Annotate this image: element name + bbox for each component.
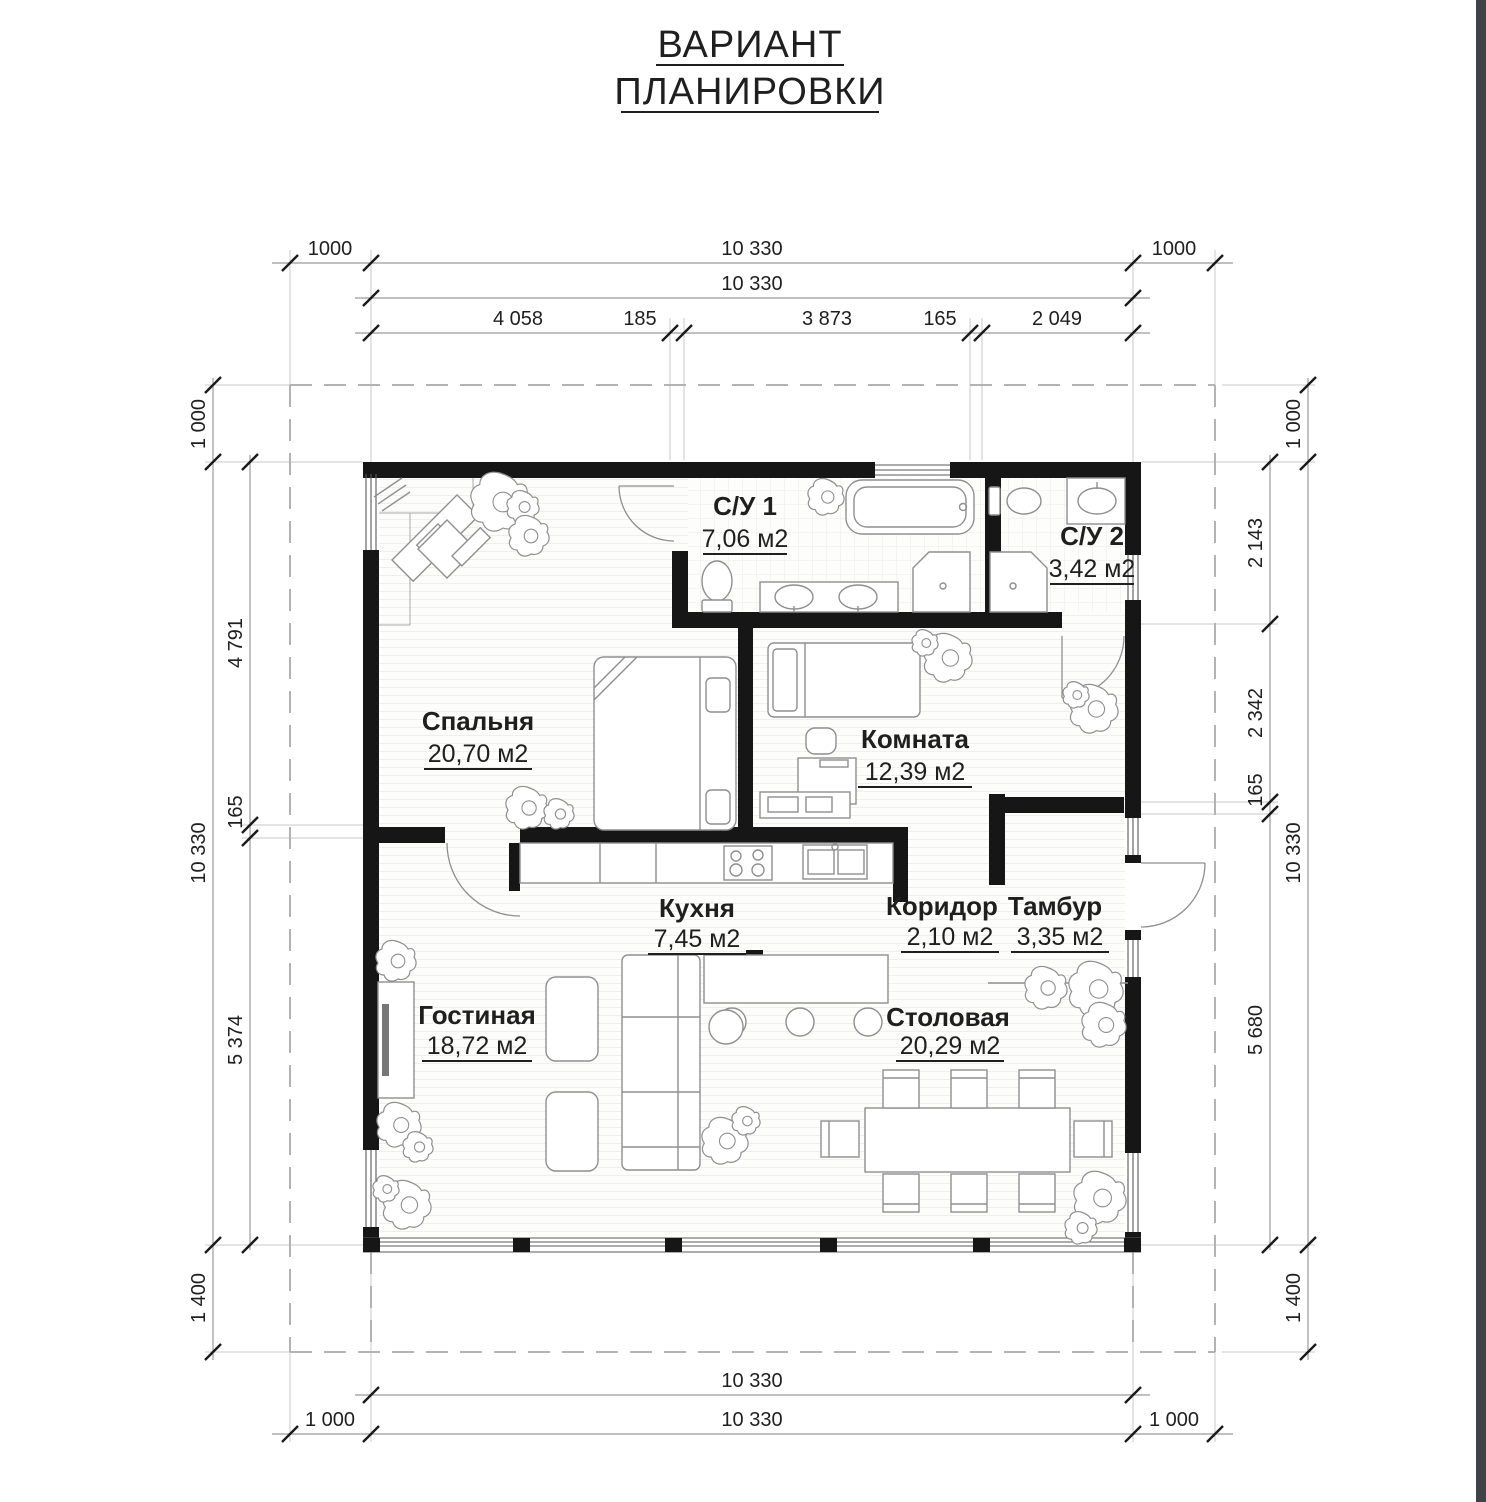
dim-bottom-right-1000: 1 000	[1149, 1409, 1199, 1431]
room-name-tambur: Тамбур	[1008, 891, 1102, 921]
dim-bottom-10330: 10 330	[721, 1370, 782, 1392]
dim-top-right-1000: 1000	[1152, 238, 1197, 260]
window-band-bottom	[363, 1238, 1141, 1252]
kitchen-sink	[803, 844, 867, 879]
room-name-gostinaya: Гостиная	[418, 1000, 536, 1030]
dim-bottom-left-1000: 1 000	[305, 1409, 355, 1431]
bedroom-door-leaf	[509, 843, 520, 891]
bedroom-bed	[594, 657, 736, 830]
dim-top-3873: 3 873	[802, 308, 852, 330]
toilet	[989, 487, 1041, 515]
dim-bottom-10330-b: 10 330	[721, 1409, 782, 1431]
room-area-komnata: 12,39 м2	[865, 758, 966, 786]
pillow	[706, 678, 730, 712]
window-right-tambur-lower	[1128, 940, 1138, 977]
dimensions-right: 2 143 2 342 165 5 680 1 000 10 330 1 400	[1245, 377, 1316, 1360]
room-label-stolovaya: Столовая 20,29 м2	[886, 1002, 1010, 1061]
desk-chair	[806, 728, 836, 754]
room-area-su1: 7,06 м2	[702, 525, 789, 553]
room-area-kuhnya: 7,45 м2	[654, 925, 741, 953]
kitchen-island	[704, 955, 888, 1003]
dim-right-5680: 5 680	[1245, 1005, 1267, 1055]
page-edge-strip	[1476, 0, 1486, 1502]
dimensions-bottom: 10 330 1 000 10 330 1 000	[272, 1370, 1233, 1442]
room-name-su1: С/У 1	[713, 491, 777, 521]
wall-bedroom-komnata	[738, 628, 753, 843]
room-area-su2: 3,42 м2	[1049, 555, 1136, 583]
room-name-spalnya: Спальня	[422, 706, 534, 736]
wall-tambur-left	[989, 794, 1005, 885]
pillow	[706, 790, 730, 824]
dimensions-top: 1000 10 330 1000 10 330 4 058 185 3 873 …	[272, 238, 1233, 341]
window-top-bath	[875, 465, 950, 475]
room-area-spalnya: 20,70 м2	[428, 740, 529, 768]
window-right-dining	[1128, 1153, 1138, 1232]
armchair	[546, 977, 598, 1061]
dim-left-165: 165	[225, 795, 247, 828]
room-name-kuhnya: Кухня	[659, 893, 735, 923]
dim-top-165: 165	[923, 308, 956, 330]
floor-plan-page: ВАРИАНТ ПЛАНИРОВКИ	[0, 0, 1486, 1502]
dim-top-10330: 10 330	[721, 238, 782, 260]
wall-tambur-top	[1005, 797, 1124, 813]
room-name-su2: С/У 2	[1060, 521, 1124, 551]
room-name-komnata: Комната	[861, 724, 970, 754]
toilet	[702, 561, 732, 612]
dim-top-left-1000: 1000	[308, 238, 353, 260]
single-bed	[768, 643, 920, 717]
drawing-title: ВАРИАНТ ПЛАНИРОВКИ	[614, 24, 885, 113]
dim-right-2143: 2 143	[1245, 518, 1267, 568]
dim-top-10330-b: 10 330	[721, 273, 782, 295]
armchair	[546, 1092, 598, 1171]
dim-right-165: 165	[1245, 773, 1267, 806]
bar-stool	[786, 1008, 814, 1036]
dim-left-4791: 4 791	[225, 618, 247, 668]
sofa	[622, 955, 700, 1170]
floor-plan-canvas: ВАРИАНТ ПЛАНИРОВКИ	[0, 0, 1486, 1502]
room-area-tambur: 3,35 м2	[1017, 923, 1104, 951]
stove	[724, 846, 772, 880]
dim-top-2049: 2 049	[1032, 308, 1082, 330]
wall-bath-bottom	[672, 612, 1062, 628]
room-area-gostinaya: 18,72 м2	[427, 1032, 528, 1060]
sink	[1067, 478, 1125, 524]
door-entrance	[1141, 863, 1205, 927]
bar-stool	[854, 1008, 882, 1036]
dim-left-5374: 5 374	[225, 1015, 247, 1065]
double-sink-vanity	[760, 582, 898, 612]
dim-left-1400: 1 400	[188, 1273, 210, 1323]
dimensions-left: 1 000 10 330 1 400 4 791 165 5 374	[188, 377, 258, 1360]
room-area-stolovaya: 20,29 м2	[900, 1032, 1001, 1060]
dim-left-1000: 1 000	[188, 399, 210, 449]
title-line-2: ПЛАНИРОВКИ	[614, 71, 885, 113]
tv-console	[378, 982, 414, 1098]
bathtub	[846, 480, 974, 534]
shower	[913, 552, 970, 612]
shower	[990, 552, 1047, 612]
dim-right-1400: 1 400	[1283, 1273, 1305, 1323]
dining-table	[865, 1108, 1070, 1172]
room-name-stolovaya: Столовая	[886, 1002, 1010, 1032]
dim-right-1000: 1 000	[1283, 399, 1305, 449]
dim-top-185: 185	[623, 308, 656, 330]
room-name-koridor: Коридор	[886, 891, 998, 921]
wall-bedroom-bottom-left	[363, 827, 445, 843]
room-area-koridor: 2,10 м2	[907, 923, 994, 951]
dim-top-4058: 4 058	[493, 308, 543, 330]
dim-right-2342: 2 342	[1245, 688, 1267, 738]
title-line-1: ВАРИАНТ	[657, 24, 842, 66]
window-left-bedroom	[366, 474, 376, 550]
dim-left-10330: 10 330	[188, 822, 210, 883]
shelf	[760, 792, 850, 818]
dim-right-10330: 10 330	[1283, 822, 1305, 883]
window-right-tambur-upper	[1128, 818, 1138, 855]
coffee-table	[709, 1010, 743, 1044]
